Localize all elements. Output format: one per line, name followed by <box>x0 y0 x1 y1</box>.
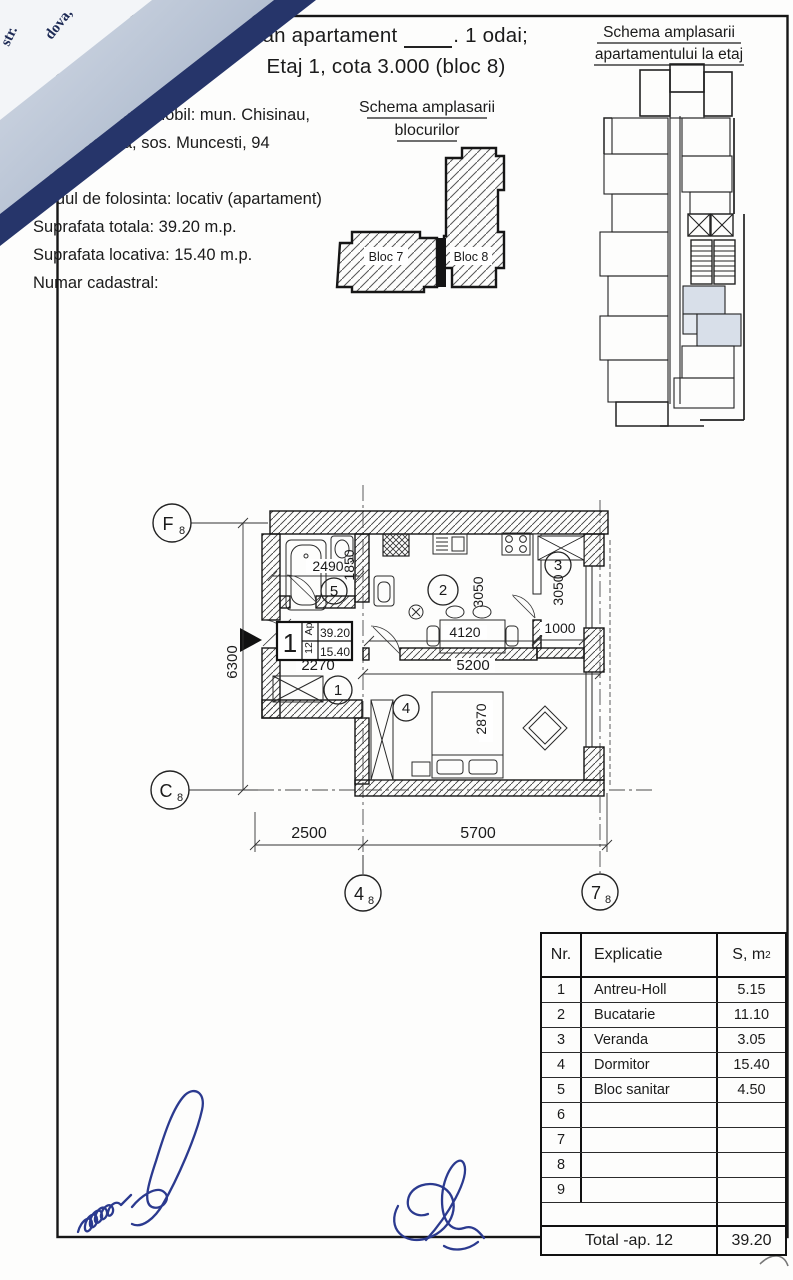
signature-left <box>78 1091 203 1232</box>
bloc8-shape <box>444 148 504 287</box>
table-row: 2Bucatarie11.10 <box>542 1003 785 1028</box>
dim-6300: 6300 <box>224 645 241 678</box>
table-empty-row <box>542 1203 785 1227</box>
wall-top <box>270 511 608 534</box>
axis-7-label: 7 <box>591 883 601 903</box>
blocks-schema-title-line2: blocurilor <box>395 122 461 139</box>
table-row: 4Dormitor15.40 <box>542 1053 785 1078</box>
wall-veranda-bottom <box>537 648 584 658</box>
header-line2: Etaj 1, cota 3.000 (bloc 8) <box>236 55 536 79</box>
table-row: 7 <box>542 1128 785 1153</box>
axis-c-sub: 8 <box>177 792 183 804</box>
dim-3050-veranda: 3050 <box>550 574 566 605</box>
header-nr: Nr. <box>542 934 582 976</box>
info-bloc: Bloc 8, <box>33 157 333 185</box>
table-row: 6 <box>542 1103 785 1128</box>
blocks-schema-title-line1: Schema amplasarii <box>359 99 495 116</box>
pillar-right-top <box>584 534 604 566</box>
drawing-header: Plan apartament . 1 odai; Etaj 1, cota 3… <box>236 24 536 79</box>
property-info-block: Adresa bunului imobil: mun. Chisinau, se… <box>33 101 333 297</box>
floor-schema-title-line2: apartamentului la etaj <box>595 46 743 63</box>
header-area: S, m2 <box>718 934 785 976</box>
axis-f-sub: 8 <box>179 525 185 537</box>
room-3-number: 3 <box>554 557 562 574</box>
info-usage: Modul de folosinta: locativ (apartament) <box>33 185 333 213</box>
table-header-row: Nr. Explicatie S, m2 <box>542 934 785 978</box>
table-total-row: Total -ap. 12 39.20 <box>542 1227 785 1254</box>
floor-plan: 2490 1850 4120 3050 3050 1000 2270 5200 … <box>151 485 655 911</box>
dim-2500: 2500 <box>291 825 327 842</box>
apt-area-living: 15.40 <box>320 645 350 659</box>
info-address-line2: sec. Botanica, sos. Muncesti, 94 <box>33 129 333 157</box>
apt-ap-label: Ap <box>303 622 315 635</box>
axis-7-sub: 8 <box>605 894 611 906</box>
room-2-number: 2 <box>439 582 447 599</box>
blank-underline <box>404 26 452 49</box>
room-1-number: 1 <box>334 682 342 699</box>
page-curl <box>760 1256 788 1266</box>
wall-bath-divider <box>355 534 369 602</box>
explication-table: Nr. Explicatie S, m2 1Antreu-Holl5.15 2B… <box>540 932 787 1256</box>
floor-schema-title-line1: Schema amplasarii <box>603 24 735 41</box>
building-plan <box>600 64 744 426</box>
dim-1850: 1850 <box>341 549 357 580</box>
dim-4120: 4120 <box>449 624 480 640</box>
floor-location-schema: Schema amplasarii apartamentului la etaj <box>594 24 744 426</box>
room-5-number: 5 <box>330 583 338 600</box>
axis-4-sub: 8 <box>368 895 374 907</box>
blocks-joint <box>437 238 446 287</box>
room-4-number: 4 <box>402 700 410 717</box>
wall-bedroom-left <box>355 718 369 784</box>
dim-5200: 5200 <box>456 657 489 674</box>
apartment-label-box: 1 Ap 12 39.20 15.40 <box>277 622 352 660</box>
info-living-area: Suprafata locativa: 15.40 m.p. <box>33 241 333 269</box>
axis-f-label: F <box>163 514 174 534</box>
axis-4-label: 4 <box>354 884 364 904</box>
table-row: 1Antreu-Holl5.15 <box>542 978 785 1003</box>
header-explicatie: Explicatie <box>582 934 718 976</box>
total-label: Total -ap. 12 <box>542 1227 718 1254</box>
axis-markers <box>151 504 618 911</box>
dim-2870: 2870 <box>473 703 489 734</box>
table-row: 9 <box>542 1178 785 1203</box>
axis-labels: F 8 C 8 4 8 7 8 <box>160 514 612 907</box>
bloc8-label: Bloc 8 <box>454 250 489 264</box>
dim-5700: 5700 <box>460 825 496 842</box>
wall-hall-bottom <box>262 700 362 718</box>
dim-1000: 1000 <box>544 620 575 636</box>
table-row: 8 <box>542 1153 785 1178</box>
apt-number: 1 <box>283 628 297 658</box>
dim-2490: 2490 <box>312 558 343 574</box>
scanned-cadastral-plan-page: Schema amplasarii blocurilor Bloc 7 Bloc… <box>0 0 793 1280</box>
axis-c-label: C <box>160 781 173 801</box>
total-value: 39.20 <box>718 1227 785 1254</box>
header-line1: Plan apartament . 1 odai; <box>236 24 536 48</box>
blocks-schema: Schema amplasarii blocurilor Bloc 7 Bloc… <box>337 99 504 292</box>
table-row: 3Veranda3.05 <box>542 1028 785 1053</box>
dim-3050-kitchen: 3050 <box>470 576 486 607</box>
header-line1-pre: Plan apartament <box>244 24 403 48</box>
info-address-line1: Adresa bunului imobil: mun. Chisinau, <box>33 101 333 129</box>
highlighted-apartment <box>683 286 725 314</box>
bloc7-label: Bloc 7 <box>369 250 404 264</box>
header-line1-post: . 1 odai; <box>453 24 528 48</box>
pillar-right-bottom <box>584 747 604 780</box>
vent-shaft <box>383 534 409 556</box>
apt-12-label: 12 <box>303 642 315 654</box>
pillar-right-mid <box>584 628 604 672</box>
table-row: 5Bloc sanitar4.50 <box>542 1078 785 1103</box>
info-cadastral-number: Numar cadastral: <box>33 269 333 297</box>
wall-bottom <box>355 780 604 796</box>
apt-area-total: 39.20 <box>320 626 350 640</box>
info-total-area: Suprafata totala: 39.20 m.p. <box>33 213 333 241</box>
